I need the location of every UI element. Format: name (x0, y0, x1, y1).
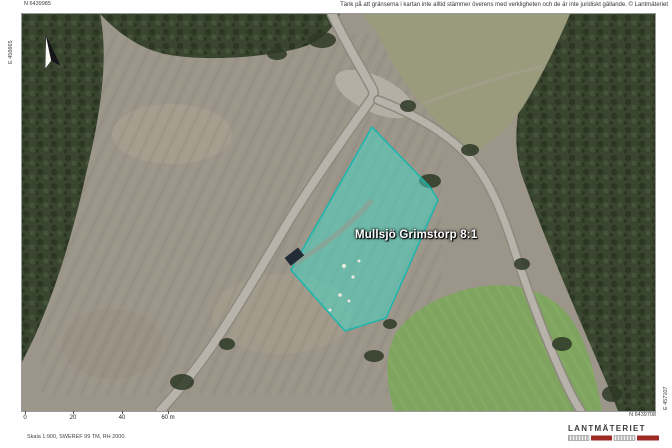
map-export-page: Tänk på att gränserna i kartan inte allt… (0, 0, 672, 448)
coordinate-right-e: E 457107 (663, 386, 669, 410)
scale-tick-label: 0 (15, 415, 35, 421)
scale-tick-label: 40 (112, 415, 132, 421)
scale-tick (73, 411, 74, 414)
scale-reference-text: Skala 1:900, SWEREF 99 TM, RH 2000. (27, 434, 126, 440)
aerial-map[interactable]: Mullsjö Grimstorp 8:1 (22, 14, 655, 411)
coordinate-bottom-right-n: N 6439708 (596, 412, 656, 418)
scale-tick-label: 60 m (152, 415, 184, 421)
coordinate-left-e: E 456665 (8, 40, 14, 64)
lantmateriet-logo: LANTMÄTERIET (568, 424, 662, 441)
lantmateriet-logo-bar (568, 435, 660, 441)
disclaimer-text: Tänk på att gränserna i kartan inte allt… (340, 2, 668, 8)
aerial-photo (22, 14, 655, 411)
coordinate-top-left-n: N 6439985 (24, 1, 51, 7)
scale-tick (168, 411, 169, 414)
scale-tick-label: 20 (63, 415, 83, 421)
lantmateriet-logo-text: LANTMÄTERIET (568, 424, 662, 433)
scale-tick (122, 411, 123, 414)
parcel-label: Mullsjö Grimstorp 8:1 (355, 229, 477, 241)
scale-tick (25, 411, 26, 414)
